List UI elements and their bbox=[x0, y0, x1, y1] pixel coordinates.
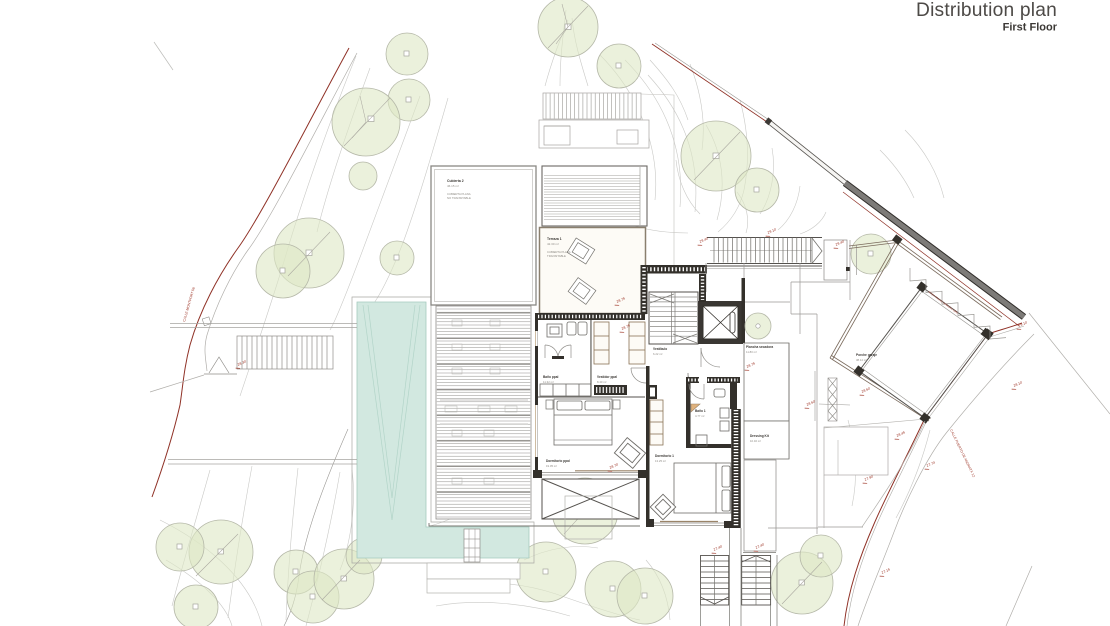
svg-text:Baño 1: Baño 1 bbox=[695, 409, 706, 413]
svg-text:8.40 m²: 8.40 m² bbox=[597, 380, 607, 384]
svg-text:Plancha secadora: Plancha secadora bbox=[746, 345, 773, 349]
svg-text:Porche garaje: Porche garaje bbox=[856, 353, 877, 357]
svg-text:Dormitorio 1: Dormitorio 1 bbox=[655, 454, 674, 458]
svg-text:Dressing Kit: Dressing Kit bbox=[750, 434, 770, 438]
svg-text:11.80 m²: 11.80 m² bbox=[746, 350, 757, 354]
svg-text:10.40 m²: 10.40 m² bbox=[750, 439, 761, 443]
svg-text:Vestíbulo: Vestíbulo bbox=[653, 347, 667, 351]
svg-text:Dormitorio ppal: Dormitorio ppal bbox=[546, 459, 570, 463]
svg-text:Distribution plan: Distribution plan bbox=[916, 0, 1057, 21]
svg-text:Vestidor ppal: Vestidor ppal bbox=[597, 375, 617, 379]
svg-text:11.32 m²: 11.32 m² bbox=[543, 380, 554, 384]
svg-text:4.77 m²: 4.77 m² bbox=[695, 414, 705, 418]
svg-text:42.30 m²: 42.30 m² bbox=[547, 242, 559, 246]
svg-text:46.15 m²: 46.15 m² bbox=[447, 184, 459, 188]
svg-text:38.12 m²: 38.12 m² bbox=[856, 358, 867, 362]
svg-text:Cubierta 2: Cubierta 2 bbox=[447, 179, 464, 183]
svg-text:6.22 m²: 6.22 m² bbox=[653, 352, 663, 356]
svg-text:19.05 m²: 19.05 m² bbox=[546, 464, 557, 468]
svg-text:13.25 m²: 13.25 m² bbox=[655, 459, 666, 463]
svg-text:NO TRANSITABLE: NO TRANSITABLE bbox=[447, 196, 471, 200]
svg-text:Terraza 1: Terraza 1 bbox=[547, 237, 562, 241]
svg-text:Baño ppal: Baño ppal bbox=[543, 375, 559, 379]
svg-text:First Floor: First Floor bbox=[1003, 22, 1058, 34]
svg-text:TRANSITABLE: TRANSITABLE bbox=[547, 254, 566, 258]
